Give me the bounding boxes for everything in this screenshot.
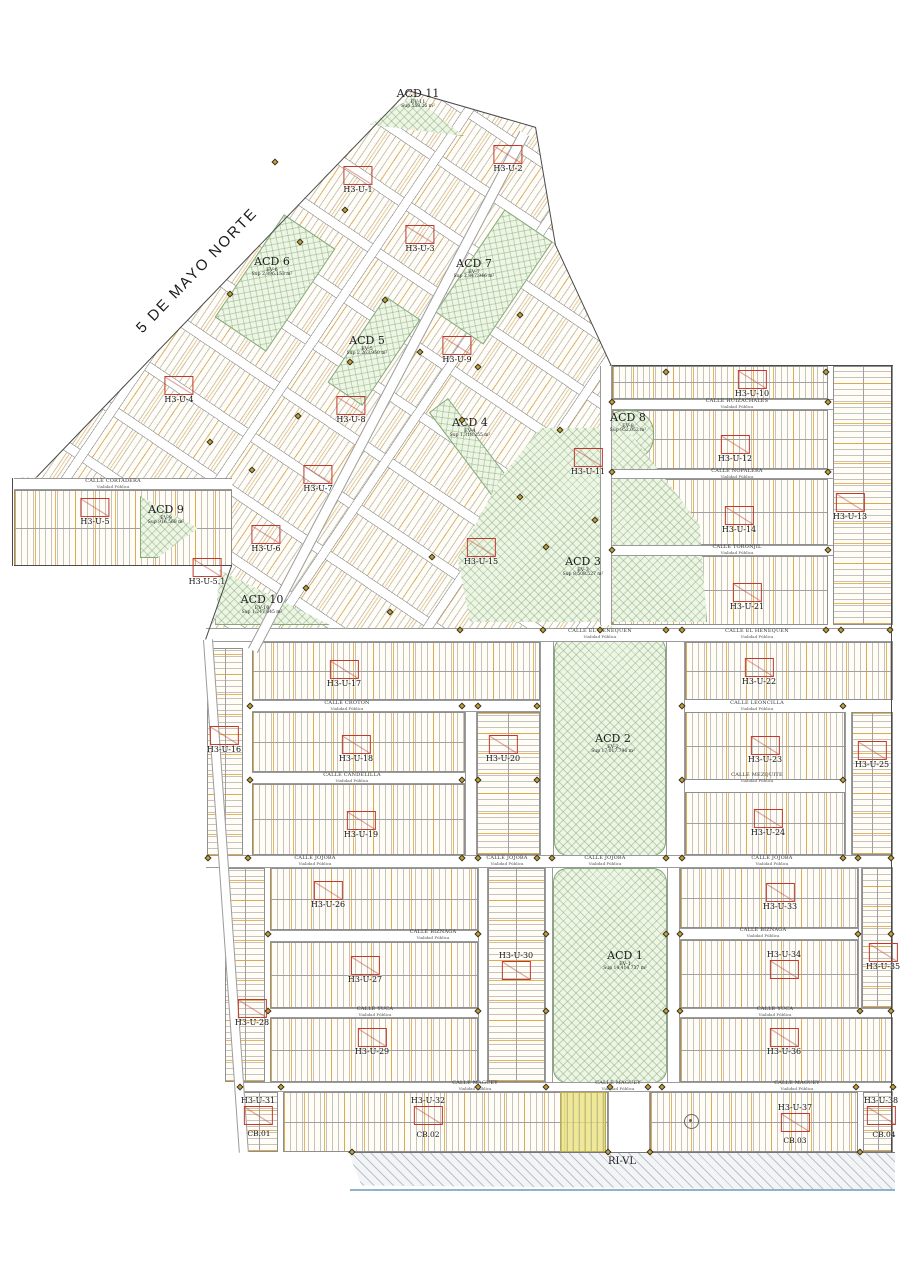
block-label: H3-U-10 xyxy=(735,389,769,399)
block-marker: H3-U-28 xyxy=(235,999,269,1028)
boundary-line xyxy=(891,366,892,1152)
lot-block xyxy=(14,490,232,566)
block-marker: H3-U-6 xyxy=(251,525,280,554)
street-subtitle: Vialidad Pública xyxy=(725,635,789,639)
green-area-label: ACD 10EV-10Sup 1,247.645 m² xyxy=(241,594,284,616)
block-marker-box xyxy=(501,961,530,980)
green-area-label: ACD 4EV-4Sup 1,318.255 m² xyxy=(450,417,491,439)
acd-name: ACD 9 xyxy=(148,504,184,516)
survey-marker-dot xyxy=(839,702,846,709)
block-label: H3-U-23 xyxy=(748,755,782,765)
acd-area-value: Sup 916.568 m² xyxy=(148,521,184,526)
street-name-label: CALLE NOPALERAVialidad Pública xyxy=(711,469,762,479)
street-subtitle: Vialidad Pública xyxy=(730,707,784,711)
block-marker-box xyxy=(573,448,602,467)
street-name-label: CALLE MAGUEYVialidad Pública xyxy=(774,1081,820,1091)
street xyxy=(465,712,477,855)
street-subtitle: Vialidad Pública xyxy=(712,551,761,555)
block-marker: H3-U-33 xyxy=(763,883,797,912)
lot-block xyxy=(477,712,540,855)
street-subtitle: Vialidad Pública xyxy=(584,862,625,866)
block-label: H3-U-20 xyxy=(486,754,520,764)
green-area-label: ACD 5EV-5Sup 2,263.950 m² xyxy=(347,335,388,357)
strip-bottom-edge xyxy=(350,1189,895,1191)
acd-name: ACD 7 xyxy=(454,258,495,270)
street-name-label: CALLE EL HENEQUENVialidad Pública xyxy=(725,629,789,639)
street-subtitle: Vialidad Pública xyxy=(706,405,769,409)
street-name-label: CALLE JOJOBAVialidad Pública xyxy=(751,856,792,866)
lot-block xyxy=(685,642,893,700)
block-marker-box xyxy=(413,1106,442,1125)
street-subtitle: Vialidad Pública xyxy=(751,862,792,866)
street-name-label: CALLE CORTADERAVialidad Pública xyxy=(85,479,141,489)
block-marker: H3-U-23 xyxy=(748,736,782,765)
block-marker: H3-U-19 xyxy=(344,811,378,840)
cb-label: CB.02 xyxy=(416,1130,439,1139)
block-marker-box xyxy=(765,883,794,902)
block-label: H3-U-19 xyxy=(344,830,378,840)
highlighted-lots xyxy=(560,1092,606,1152)
site-plan: RI-VL 5 DE MAYO NORTE ACD 11EV-11Sup 558… xyxy=(0,0,906,1280)
street-subtitle: Vialidad Pública xyxy=(324,707,369,711)
block-marker: H3-U-22 xyxy=(742,658,776,687)
street-subtitle: Vialidad Pública xyxy=(740,934,787,938)
lot-block xyxy=(650,1092,858,1152)
street xyxy=(206,628,893,642)
block-marker-box xyxy=(329,660,358,679)
acd-area-value: Sup 2,263.950 m² xyxy=(347,352,388,357)
block-marker-box xyxy=(350,956,379,975)
green-area-label: ACD 8EV-8Sup 952.052 m² xyxy=(610,412,646,434)
acd-name: ACD 10 xyxy=(241,594,284,606)
street xyxy=(845,712,852,855)
block-marker-box xyxy=(732,583,761,602)
green-area-acd-1 xyxy=(553,868,667,1083)
block-marker: H3-U-1 xyxy=(343,166,372,195)
boundary-line xyxy=(12,478,13,566)
street-name-label: CALLE JOJOBAVialidad Pública xyxy=(584,856,625,866)
street-name-label: CALLE LEONCILLAVialidad Pública xyxy=(730,701,784,711)
block-marker: H3-U-3 xyxy=(405,225,434,254)
block-label: H3-U-32 xyxy=(411,1096,445,1106)
roundabout-icon xyxy=(684,1114,699,1129)
lot-block xyxy=(252,642,540,700)
block-marker: H3-U-36 xyxy=(767,1028,801,1057)
acd-name: ACD 6 xyxy=(252,256,293,268)
green-area-label: ACD 11EV-11Sup 558.26 m² xyxy=(397,88,440,110)
block-label: H3-U-30 xyxy=(499,951,533,961)
block-marker-box xyxy=(237,999,266,1018)
acd-name: ACD 4 xyxy=(450,417,491,429)
block-label: H3-U-35 xyxy=(866,962,900,972)
acd-area-value: Sup 1,247.645 m² xyxy=(241,611,284,616)
block-marker: H3-U-35 xyxy=(866,943,900,972)
street-subtitle: Vialidad Pública xyxy=(757,1013,793,1017)
acd-area-value: Sup 1,318.255 m² xyxy=(450,434,491,439)
street-subtitle: Vialidad Pública xyxy=(410,936,457,940)
lot-block xyxy=(862,868,893,1008)
block-label: H3-U-3 xyxy=(405,244,434,254)
block-marker: H3-U-31 xyxy=(241,1096,275,1125)
street-name-label: CALLE BIZNAGAVialidad Pública xyxy=(740,928,787,938)
block-label: H3-U-22 xyxy=(742,677,776,687)
block-marker-box xyxy=(303,465,332,484)
street xyxy=(600,366,612,625)
acd-area-value: Sup 2,847.946 m² xyxy=(454,275,495,280)
street-name-label: CALLE JOJOBAVialidad Pública xyxy=(294,856,335,866)
street-name-label: CALLE CROTONVialidad Pública xyxy=(324,701,369,711)
block-marker: H3-U-17 xyxy=(327,660,361,689)
block-label: H3-U-21 xyxy=(730,602,764,612)
block-marker-box xyxy=(724,506,753,525)
acd-name: ACD 2 xyxy=(591,733,635,745)
block-marker: H3-U-29 xyxy=(355,1028,389,1057)
block-label: H3-U-18 xyxy=(339,754,373,764)
street-subtitle: Vialidad Pública xyxy=(595,1087,641,1091)
block-label: H3-U-1 xyxy=(343,185,372,195)
street-subtitle: Vialidad Pública xyxy=(323,779,381,783)
green-area-label: ACD 2EV-2Sup 17,017.796 m² xyxy=(591,733,635,755)
acd-area-value: Sup 952.052 m² xyxy=(610,429,646,434)
block-marker-box xyxy=(80,498,109,517)
block-marker: H3-U-10 xyxy=(735,370,769,399)
acd-name: ACD 1 xyxy=(603,950,647,962)
block-marker-box xyxy=(192,558,221,577)
street-subtitle: Vialidad Pública xyxy=(568,635,632,639)
block-label: H3-U-2 xyxy=(493,164,522,174)
block-marker-box xyxy=(442,336,471,355)
block-marker-box xyxy=(336,396,365,415)
block-label: H3-U-29 xyxy=(355,1047,389,1057)
block-marker: H3-U-27 xyxy=(348,956,382,985)
acd-name: ACD 8 xyxy=(610,412,646,424)
block-marker: H3-U-5.1 xyxy=(189,558,226,587)
street-subtitle: Vialidad Pública xyxy=(85,485,141,489)
block-marker: H3-U-2 xyxy=(493,145,522,174)
block-marker: H3-U-7 xyxy=(303,465,332,494)
block-label: H3-U-17 xyxy=(327,679,361,689)
block-marker-box xyxy=(341,735,370,754)
block-label: H3-U-16 xyxy=(207,745,241,755)
block-marker: H3-U-18 xyxy=(339,735,373,764)
acd-area-value: Sup 17,017.796 m² xyxy=(591,750,635,755)
block-marker-box xyxy=(343,166,372,185)
block-marker: H3-U-15 xyxy=(464,538,498,567)
block-marker-box xyxy=(720,435,749,454)
block-marker-box xyxy=(251,525,280,544)
acd-name: ACD 11 xyxy=(397,88,440,100)
block-marker-box xyxy=(357,1028,386,1047)
block-marker: H3-U-32 xyxy=(411,1096,445,1125)
block-marker: H3-U-14 xyxy=(722,506,756,535)
block-label: H3-U-33 xyxy=(763,902,797,912)
block-label: H3-U-4 xyxy=(164,395,193,405)
street-name-label: CALLE YUCAVialidad Pública xyxy=(357,1007,393,1017)
block-marker-box xyxy=(835,493,864,512)
block-marker-box xyxy=(493,145,522,164)
lot-block xyxy=(270,868,478,930)
block-marker: H3-U-38 xyxy=(864,1096,898,1125)
block-marker-box xyxy=(857,741,886,760)
green-area-label: ACD 3EV-3Sup 8,508.527 m² xyxy=(563,556,604,578)
block-marker-box xyxy=(488,735,517,754)
block-marker-box xyxy=(164,376,193,395)
street-subtitle: Vialidad Pública xyxy=(357,1013,393,1017)
block-label: H3-U-13 xyxy=(833,512,867,522)
street-name-label: CALLE TORONJILVialidad Pública xyxy=(712,545,761,555)
block-label: H3-U-36 xyxy=(767,1047,801,1057)
block-label: H3-U-31 xyxy=(241,1096,275,1106)
block-label: H3-U-11 xyxy=(571,467,605,477)
block-marker-box xyxy=(737,370,766,389)
street xyxy=(858,868,862,1008)
block-marker: H3-U-4 xyxy=(164,376,193,405)
block-label: H3-U-6 xyxy=(251,544,280,554)
street xyxy=(667,868,680,1082)
block-label: H3-U-34 xyxy=(767,950,801,960)
block-label: H3-U-12 xyxy=(718,454,752,464)
green-area-label: ACD 1EV-1Sup 14,414.737 m² xyxy=(603,950,647,972)
block-label: H3-U-8 xyxy=(336,415,365,425)
street xyxy=(478,868,488,1082)
street-subtitle: Vialidad Pública xyxy=(731,779,783,783)
block-marker-box xyxy=(868,943,897,962)
block-label: H3-U-38 xyxy=(864,1096,898,1106)
street xyxy=(540,642,554,856)
block-label: H3-U-37 xyxy=(778,1103,812,1113)
block-label: H3-U-9 xyxy=(442,355,471,365)
block-marker-box xyxy=(405,225,434,244)
street-name-label: CALLE MAGUEYVialidad Pública xyxy=(595,1081,641,1091)
green-area-label: ACD 9EV-9Sup 916.568 m² xyxy=(148,504,184,526)
block-marker-box xyxy=(313,881,342,900)
street-subtitle: Vialidad Pública xyxy=(774,1087,820,1091)
cb-label: CB.01 xyxy=(247,1129,270,1138)
cb-label: CB.04 xyxy=(872,1130,895,1139)
street-name-label: CALLE BIZNAGAVialidad Pública xyxy=(410,930,457,940)
block-label: H3-U-25 xyxy=(855,760,889,770)
block-label: H3-U-15 xyxy=(464,557,498,567)
block-marker-box xyxy=(744,658,773,677)
block-marker: H3-U-37 xyxy=(778,1103,812,1132)
block-marker-box xyxy=(780,1113,809,1132)
street-name-label: CALLE CANDELILLAVialidad Pública xyxy=(323,773,381,783)
block-marker: H3-U-13 xyxy=(833,493,867,522)
acd-area-value: Sup 8,508.527 m² xyxy=(563,573,604,578)
block-marker-box xyxy=(769,1028,798,1047)
block-label: H3-U-5 xyxy=(80,517,109,527)
block-marker: H3-U-5 xyxy=(80,498,109,527)
block-marker: H3-U-20 xyxy=(486,735,520,764)
street-subtitle: Vialidad Pública xyxy=(294,862,335,866)
street-name-label: CALLE MEZQUITEVialidad Pública xyxy=(731,773,783,783)
street xyxy=(608,1092,650,1152)
block-marker: H3-U-21 xyxy=(730,583,764,612)
block-marker: H3-U-12 xyxy=(718,435,752,464)
block-marker-box xyxy=(750,736,779,755)
lot-block xyxy=(852,712,893,855)
block-marker: H3-U-8 xyxy=(336,396,365,425)
green-area-label: ACD 7EV-7Sup 2,847.946 m² xyxy=(454,258,495,280)
street xyxy=(666,642,685,856)
block-marker: H3-U-24 xyxy=(751,809,785,838)
block-label: H3-U-24 xyxy=(751,828,785,838)
block-marker-box xyxy=(769,960,798,979)
block-marker: H3-U-34 xyxy=(767,950,801,979)
block-marker: H3-U-11 xyxy=(571,448,605,477)
street-name-label: CALLE YUCAVialidad Pública xyxy=(757,1007,793,1017)
cb-label: CB.03 xyxy=(783,1136,806,1145)
acd-name: ACD 3 xyxy=(563,556,604,568)
acd-area-value: Sup 558.26 m² xyxy=(397,105,440,110)
acd-area-value: Sup 14,414.737 m² xyxy=(603,967,647,972)
block-marker: H3-U-25 xyxy=(855,741,889,770)
block-label: H3-U-7 xyxy=(303,484,332,494)
street xyxy=(545,868,553,1082)
street-subtitle: Vialidad Pública xyxy=(486,862,527,866)
boundary-line xyxy=(612,365,893,366)
block-label: H3-U-26 xyxy=(311,900,345,910)
block-marker: H3-U-16 xyxy=(207,726,241,755)
block-marker: H3-U-9 xyxy=(442,336,471,365)
survey-marker-dot xyxy=(271,158,278,165)
acd-name: ACD 5 xyxy=(347,335,388,347)
green-area-label: ACD 6EV-6Sup 2,896.153 m² xyxy=(252,256,293,278)
street-name-label: CALLE HUIZACHALESVialidad Pública xyxy=(706,399,769,409)
street xyxy=(252,700,540,712)
lot-block xyxy=(612,366,828,399)
block-marker-box xyxy=(753,809,782,828)
block-marker: H3-U-26 xyxy=(311,881,345,910)
block-marker-box xyxy=(209,726,238,745)
street-name-label: CALLE JOJOBAVialidad Pública xyxy=(486,856,527,866)
acd-area-value: Sup 2,896.153 m² xyxy=(252,273,293,278)
street-subtitle: Vialidad Pública xyxy=(711,475,762,479)
block-label: H3-U-28 xyxy=(235,1018,269,1028)
block-marker-box xyxy=(346,811,375,830)
block-marker-box xyxy=(866,1106,895,1125)
zone-label: RI-VL xyxy=(608,1156,636,1167)
block-marker: H3-U-30 xyxy=(499,951,533,980)
block-marker-box xyxy=(466,538,495,557)
block-marker-box xyxy=(243,1106,272,1125)
block-label: H3-U-5.1 xyxy=(189,577,226,587)
block-label: H3-U-14 xyxy=(722,525,756,535)
block-label: H3-U-27 xyxy=(348,975,382,985)
